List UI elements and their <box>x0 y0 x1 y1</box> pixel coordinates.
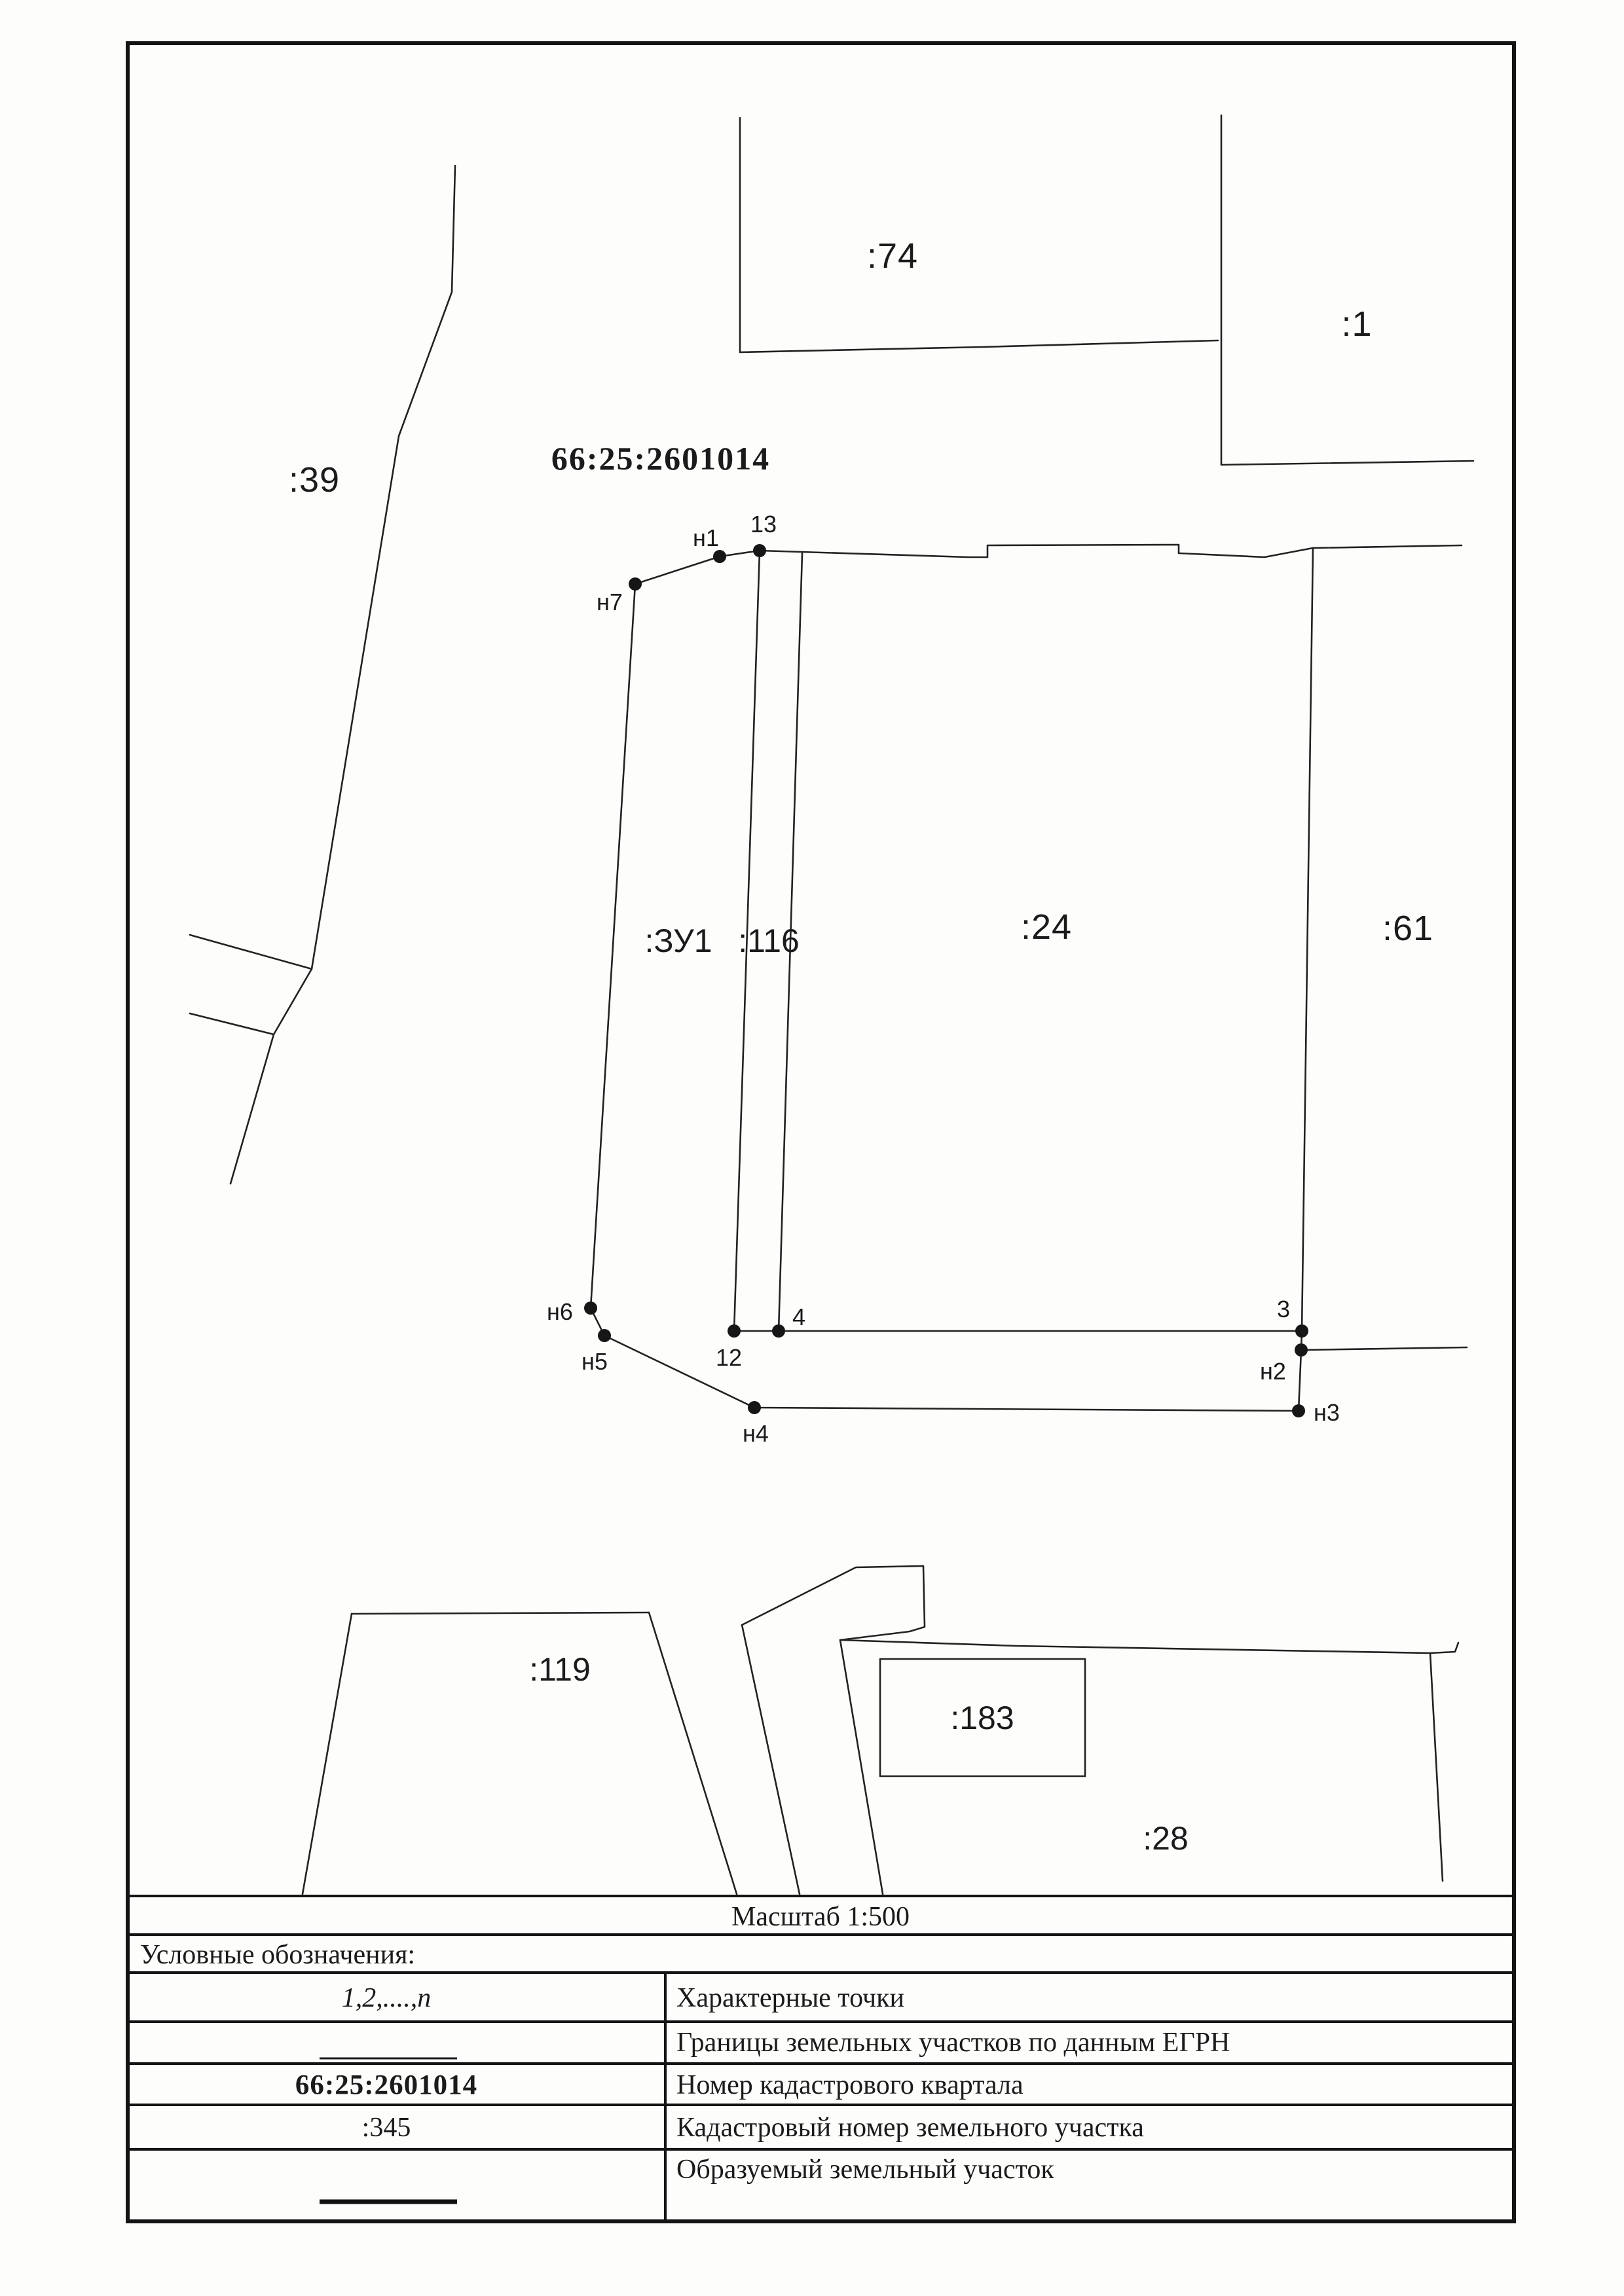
point-h3-label: н3 <box>1314 1401 1340 1425</box>
point-12-dot <box>728 1324 741 1338</box>
quarter-number-label: 66:25:2601014 <box>551 442 770 475</box>
parcel-116-label: :116 <box>738 924 800 957</box>
parcel-zu1-label: :ЗУ1 <box>644 924 712 957</box>
parcel-74-label: :74 <box>867 238 918 274</box>
legend-row4-description: Кадастровый номер земельного участка <box>676 2114 1144 2141</box>
legend-row3-description: Номер кадастрового квартала <box>676 2071 1024 2099</box>
point-h2-label: н2 <box>1260 1360 1286 1383</box>
parcel-24-north-boundary <box>760 545 1462 557</box>
legend-title: Условные обозначения: <box>140 1941 415 1969</box>
parcel-61-label: :61 <box>1382 911 1433 946</box>
parcel-28-north-boundary <box>840 1640 1458 1653</box>
zu1-west-boundary <box>591 584 635 1308</box>
point-h5-dot <box>598 1329 611 1342</box>
parcel-24-east-boundary <box>1302 548 1313 1331</box>
point-h7-dot <box>629 577 642 591</box>
zu1-north-boundary <box>635 551 760 584</box>
parcel-119-west <box>303 1614 352 1894</box>
legend-row3-symbol: 66:25:2601014 <box>295 2071 477 2100</box>
road-west-edge <box>742 1625 800 1894</box>
page-frame <box>128 43 1514 2221</box>
point-h5-label: н5 <box>581 1350 608 1374</box>
point-13-label: 13 <box>750 513 777 536</box>
scale-text: Масштаб 1:500 <box>731 1903 910 1931</box>
parcel-39-notch-lower <box>190 1013 274 1034</box>
point-4-label: 4 <box>792 1305 805 1329</box>
point-h4-label: н4 <box>743 1422 769 1446</box>
zu1-east-boundary <box>1299 1331 1302 1411</box>
parcel-39-boundary <box>231 166 455 1184</box>
point-12-label: 12 <box>716 1346 742 1370</box>
point-4-dot <box>772 1324 785 1338</box>
point-h4-dot <box>748 1401 761 1414</box>
parcel-183-label: :183 <box>950 1702 1014 1734</box>
parcel-119-label: :119 <box>529 1653 591 1686</box>
point-3-dot <box>1295 1324 1308 1338</box>
parcel-74-boundary <box>740 118 1218 352</box>
point-h6-label: н6 <box>547 1300 573 1324</box>
road-east-edge <box>840 1640 883 1894</box>
point-h1-label: н1 <box>693 526 719 550</box>
legend-row1-symbol: 1,2,....,п <box>342 1984 432 2012</box>
characteristic-points <box>584 544 1308 1417</box>
point-13-dot <box>753 544 766 557</box>
zu1-south-boundary <box>591 1308 1299 1411</box>
point-h1-dot <box>713 550 726 563</box>
parcel-119-east <box>649 1613 737 1894</box>
parcel-28-east-boundary <box>1430 1653 1443 1881</box>
point-h6-dot <box>584 1302 597 1315</box>
legend-row1-description: Характерные точки <box>676 1984 904 2012</box>
parcel-119-north <box>352 1613 649 1614</box>
parcel-1-label: :1 <box>1341 306 1372 342</box>
point-h2-dot <box>1295 1343 1308 1357</box>
parcel-1-boundary <box>1221 115 1473 465</box>
cadastral-plan-sheet: 66:25:2601014 :39 :74 :1 :ЗУ1 :116 :24 :… <box>0 0 1624 2296</box>
parcel-28-label: :28 <box>1143 1822 1189 1855</box>
legend-row5-description: Образуемый земельный участок <box>676 2156 1054 2183</box>
road-wedge-outline <box>742 1566 925 1640</box>
parcel-39-notch-upper <box>190 935 312 969</box>
legend-row2-description: Границы земельных участков по данным ЕГР… <box>676 2029 1230 2056</box>
point-h3-dot <box>1292 1404 1305 1417</box>
point-h7-label: н7 <box>597 591 623 614</box>
line-n2-east <box>1301 1347 1467 1350</box>
parcel-24-label: :24 <box>1021 909 1072 945</box>
parcel-39-label: :39 <box>289 462 340 498</box>
legend-row4-symbol: :345 <box>362 2114 411 2141</box>
point-3-label: 3 <box>1277 1298 1290 1321</box>
